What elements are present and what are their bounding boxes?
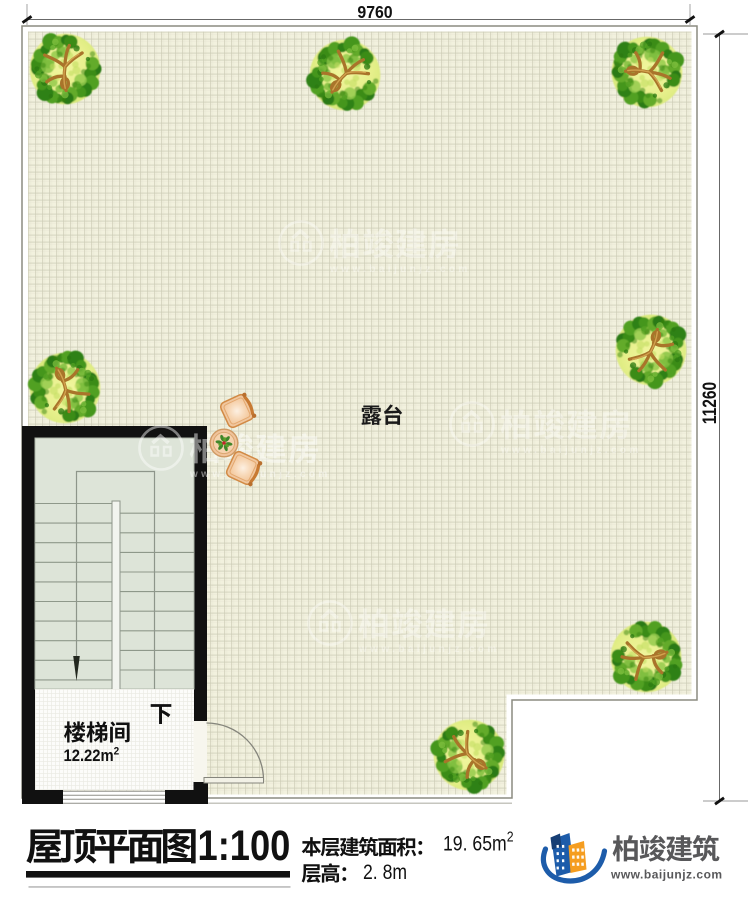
- svg-text:19. 65m2: 19. 65m2: [443, 828, 514, 856]
- svg-text:1:100: 1:100: [198, 822, 291, 869]
- svg-text:www.baijunjz.com: www.baijunjz.com: [500, 445, 642, 456]
- svg-text:www.baijunjz.com: www.baijunjz.com: [358, 644, 500, 655]
- svg-text:11260: 11260: [699, 382, 721, 424]
- svg-text:www.baijunjz.com: www.baijunjz.com: [610, 868, 723, 882]
- svg-text:9760: 9760: [357, 2, 392, 22]
- svg-text:12.22m2: 12.22m2: [64, 745, 120, 765]
- svg-text:2. 8m: 2. 8m: [363, 860, 407, 884]
- svg-text:www.baijunjz.com: www.baijunjz.com: [329, 264, 471, 275]
- svg-text:www.baijunjz.com: www.baijunjz.com: [189, 469, 331, 480]
